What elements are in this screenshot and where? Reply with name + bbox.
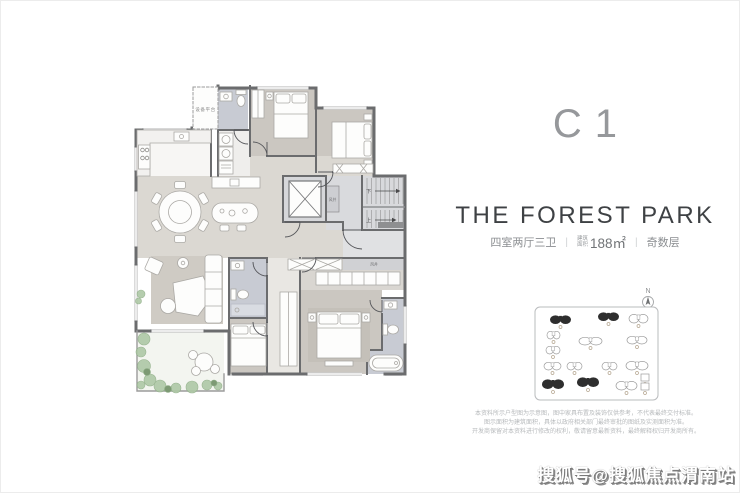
disclaimer-line: 图示面积为建筑面积，具体以政府相关部门最终审批的图纸及实测面积为准。 (462, 419, 710, 428)
north-label: N (645, 288, 650, 295)
disclaimer: 本资料所示户型图为示意图，图中家具布置及装饰仅供参考，不代表最终交付标准。 图示… (462, 410, 710, 437)
equipment-platform-label: 设备平台 (195, 106, 215, 113)
spec-divider: | (565, 237, 568, 248)
elevator (289, 181, 321, 217)
air-shaft-label-b: 风井 (370, 262, 378, 267)
spec-floor: 奇数层 (647, 234, 680, 250)
stairs-up-label: 上 (366, 216, 371, 224)
spec-divider: | (635, 237, 638, 248)
site-plan: N (535, 288, 658, 400)
air-shaft-label-a: 风井 (329, 197, 337, 202)
page-title: THE FOREST PARK (450, 202, 720, 230)
spec-area-value: 188㎡ (590, 232, 626, 252)
spec-rooms: 四室两厅三卫 (490, 234, 556, 250)
disclaimer-line: 开发商保留对本资料进行修改的权利，敬请留意最新资料，最终解释权归开发商所有。 (462, 428, 710, 437)
spec-area-label: 建筑 面积 (577, 236, 588, 248)
disclaimer-line: 本资料所示户型图为示意图，图中家具布置及装饰仅供参考，不代表最终交付标准。 (462, 410, 710, 419)
spec-area: 建筑 面积 188㎡ (577, 232, 626, 252)
north-arrow-icon (643, 297, 654, 308)
stairs-down-label: 下 (366, 188, 371, 195)
spec-area-label-bottom: 面积 (577, 242, 588, 248)
spec-row: 四室两厅三卫 | 建筑 面积 188㎡ | 奇数层 (450, 232, 720, 252)
unit-code: C1 (455, 102, 715, 147)
watermark: 搜狐号@搜狐焦点渭南站 (537, 461, 735, 486)
